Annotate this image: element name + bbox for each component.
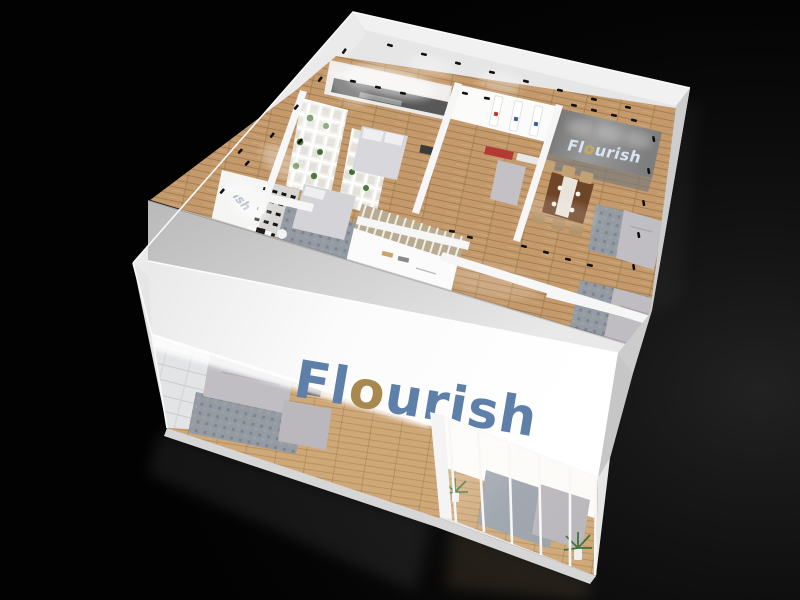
side-table <box>277 229 287 239</box>
plant <box>311 173 317 179</box>
plant <box>363 185 369 191</box>
display-product-blue <box>534 122 539 127</box>
booth-render: Flourish ish <box>0 0 800 600</box>
plate <box>576 192 581 197</box>
display-product-red <box>494 112 499 117</box>
plant <box>317 149 323 155</box>
logo-letters-fl: Fl <box>290 350 355 418</box>
mullion <box>595 477 596 575</box>
render-stage: Flourish ish <box>0 0 800 600</box>
plate <box>558 186 563 191</box>
display-product-blue <box>514 117 519 122</box>
